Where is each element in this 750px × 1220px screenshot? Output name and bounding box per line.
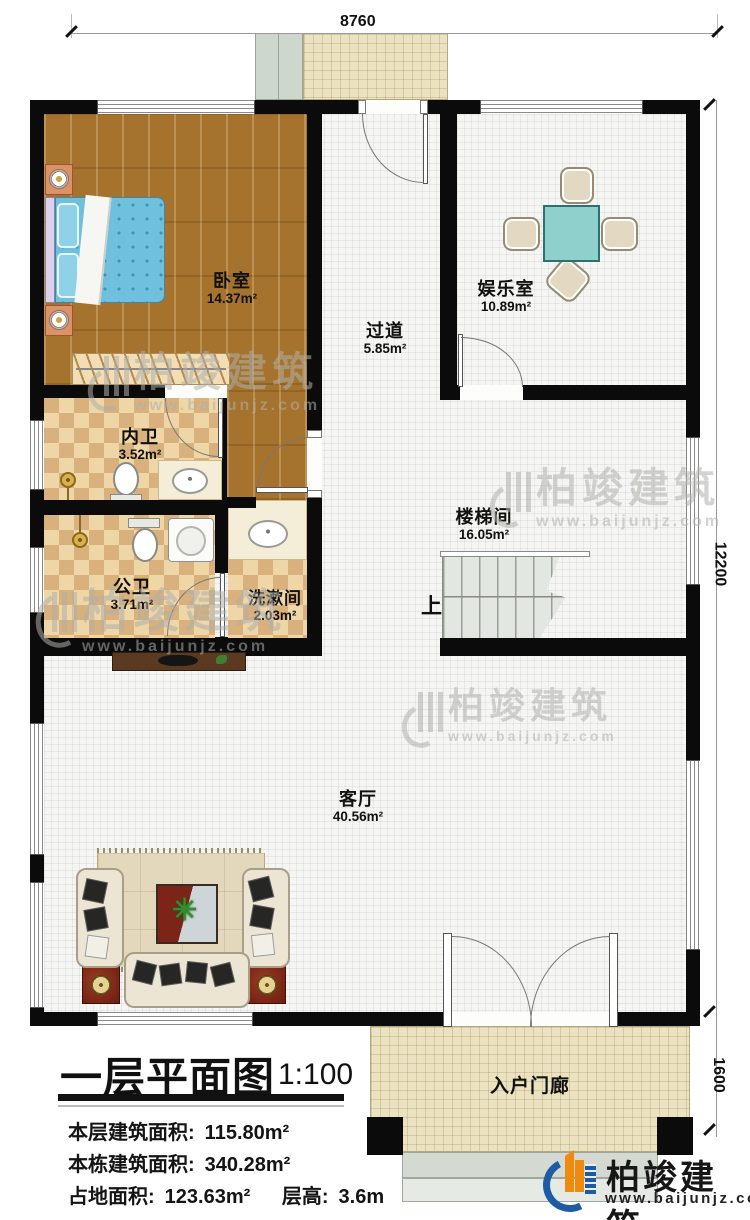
toilet — [132, 528, 158, 562]
coffee-table-plant: ✳ — [172, 893, 197, 928]
shower-stem — [79, 514, 81, 534]
wall — [30, 490, 44, 547]
wall-innerbath-bottom — [30, 500, 228, 515]
door-jamb — [420, 100, 428, 114]
door-jamb — [307, 490, 322, 498]
washroom-label: 洗漱间 2.03m² — [248, 590, 302, 623]
sofa-cushion — [251, 933, 275, 957]
title-rule-thin — [58, 1105, 344, 1107]
wall-bath-divider — [215, 515, 228, 573]
company-logo-icon — [543, 1148, 603, 1208]
company-name: 柏竣建筑 — [606, 1150, 750, 1220]
stairs-up-label: 上 — [421, 590, 442, 620]
building-area-value: 340.28m² — [205, 1154, 291, 1176]
sofa-cushion — [85, 935, 110, 960]
plant — [216, 655, 227, 664]
game-table — [543, 205, 600, 262]
inner-bath-label: 内卫 3.52m² — [119, 428, 162, 462]
door-jamb — [307, 430, 322, 438]
toilet — [113, 462, 139, 496]
bed-headboard — [45, 197, 55, 303]
wall — [440, 385, 460, 400]
window — [480, 100, 643, 114]
door-opening — [165, 385, 227, 398]
bedside-lamp — [49, 169, 69, 189]
door-opening — [460, 385, 523, 400]
company-website: www.baijunjz.com — [605, 1190, 750, 1207]
dim-tick — [703, 1005, 716, 1018]
floor-area-value: 115.80m² — [205, 1122, 290, 1144]
top-dimension-line — [72, 33, 718, 34]
shower-head — [72, 532, 88, 548]
stair-handrail — [440, 551, 590, 557]
washing-machine-drum — [176, 526, 206, 556]
land-area-label: 占地面积: — [68, 1186, 155, 1208]
dim-guide — [71, 14, 72, 38]
porch-label: 入户门廊 — [490, 1077, 570, 1097]
right-dimension-label: 12200 — [710, 542, 728, 587]
floor-plan: 8760 12200 1600 — [0, 0, 750, 1220]
pillow — [57, 203, 79, 248]
wall-washroom-right — [307, 497, 322, 656]
wall-living-top-right — [440, 638, 686, 656]
wall — [686, 100, 700, 437]
sofa-cushion — [185, 961, 208, 984]
dim-guide — [717, 14, 718, 38]
rear-porch-tile — [303, 33, 448, 100]
wall — [255, 100, 360, 114]
window — [30, 723, 44, 855]
tv — [158, 655, 198, 666]
sofa-cushion — [83, 906, 108, 931]
bedroom-label: 卧室 14.37m² — [207, 272, 257, 306]
wardrobe-rod — [76, 368, 226, 370]
building-area-label: 本栋建筑面积: — [68, 1154, 195, 1176]
wall-corridor-right — [440, 114, 457, 387]
chair — [560, 167, 594, 204]
floor-lamp — [257, 975, 277, 995]
wall — [30, 100, 44, 420]
door-opening — [307, 437, 322, 497]
wall — [428, 100, 480, 114]
dim-tick — [703, 98, 716, 111]
title-rule — [58, 1094, 344, 1101]
dim-tick — [703, 1123, 716, 1136]
sink — [172, 468, 208, 494]
wall-bedroom-right — [307, 114, 322, 437]
porch-column — [367, 1117, 403, 1155]
top-dimension-label: 8760 — [340, 13, 376, 31]
stairwell-label: 楼梯间 16.05m² — [456, 508, 513, 542]
toilet-tank — [128, 518, 160, 528]
bedside-lamp — [49, 310, 69, 330]
floor-lamp — [91, 975, 111, 995]
floor-height-value: 3.6m — [339, 1186, 385, 1208]
land-area-line: 占地面积:123.63m² 层高:3.6m — [68, 1180, 384, 1209]
door-jamb — [358, 100, 366, 114]
shower-head — [60, 472, 76, 488]
wall — [30, 1012, 97, 1026]
wall-stub — [227, 497, 256, 508]
entry-door-leaf-left — [443, 933, 452, 1027]
chair — [601, 217, 638, 251]
rear-steps-divider — [278, 33, 279, 100]
wall — [30, 613, 44, 723]
window — [30, 420, 44, 490]
plan-scale: 1:100 — [278, 1058, 353, 1092]
porch-dimension-label: 1600 — [709, 1057, 727, 1093]
wall — [686, 585, 700, 760]
washroom-sink — [248, 520, 288, 548]
land-area-value: 123.63m² — [165, 1186, 251, 1208]
sofa-cushion — [82, 878, 108, 904]
rug-fringe — [97, 848, 263, 853]
window — [97, 1012, 253, 1026]
sofa-cushion — [159, 963, 183, 987]
wall — [253, 1012, 445, 1026]
wall — [30, 855, 44, 882]
window — [97, 100, 255, 114]
window — [686, 437, 700, 585]
entry-door-leaf-right — [609, 933, 618, 1027]
window — [686, 760, 700, 950]
chair — [503, 217, 540, 251]
window — [30, 882, 44, 1008]
sofa-cushion — [249, 904, 274, 929]
living-label: 客厅 40.56m² — [333, 790, 383, 824]
floor-height-label: 层高: — [282, 1186, 329, 1208]
floor-area-line: 本层建筑面积:115.80m² — [68, 1116, 289, 1145]
wall-entertainment-bottom — [523, 385, 686, 400]
floor-area-label: 本层建筑面积: — [68, 1122, 195, 1144]
corridor-label: 过道 5.85m² — [364, 322, 407, 356]
door-opening — [360, 100, 428, 114]
window — [30, 547, 44, 613]
wall-bedroom-bottom — [30, 385, 165, 398]
entertainment-label: 娱乐室 10.89m² — [478, 280, 535, 314]
public-bath-label: 公卫 3.71m² — [111, 578, 154, 612]
rear-steps — [255, 33, 303, 100]
wall — [616, 1012, 700, 1026]
building-area-line: 本栋建筑面积:340.28m² — [68, 1148, 290, 1177]
